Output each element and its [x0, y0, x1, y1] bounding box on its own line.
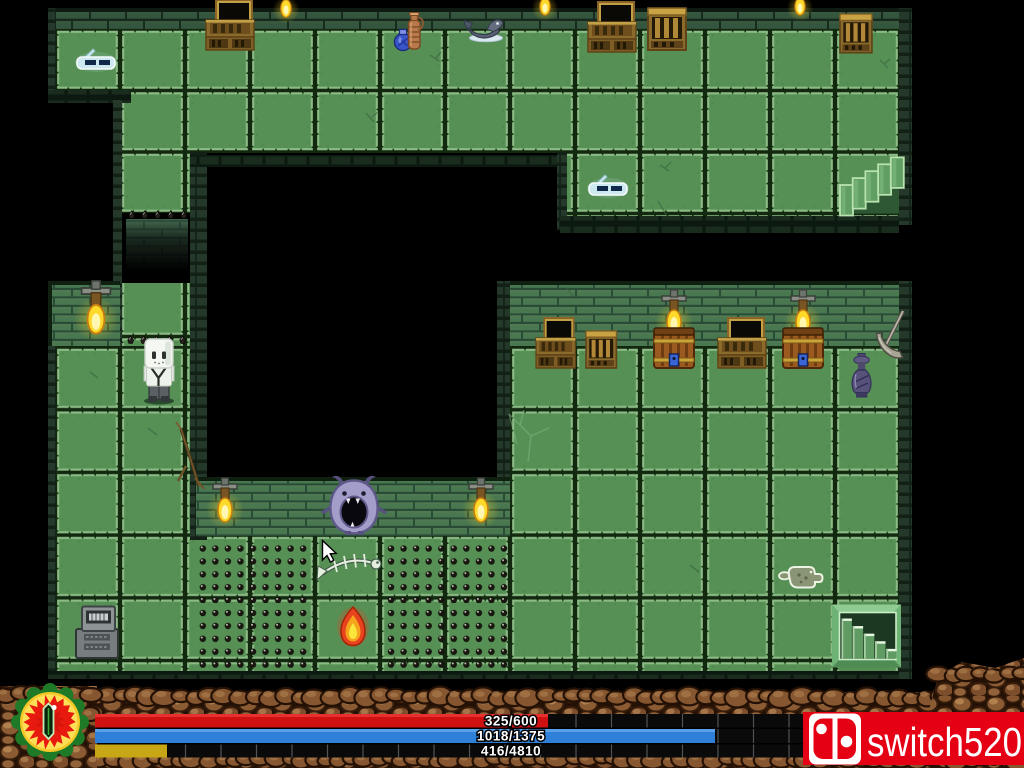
svg-text:416/4810: 416/4810 — [481, 744, 541, 759]
svg-text:switch520: switch520 — [867, 719, 1022, 765]
svg-text:1018/1375: 1018/1375 — [477, 729, 545, 744]
svg-text:325/600: 325/600 — [485, 714, 537, 729]
